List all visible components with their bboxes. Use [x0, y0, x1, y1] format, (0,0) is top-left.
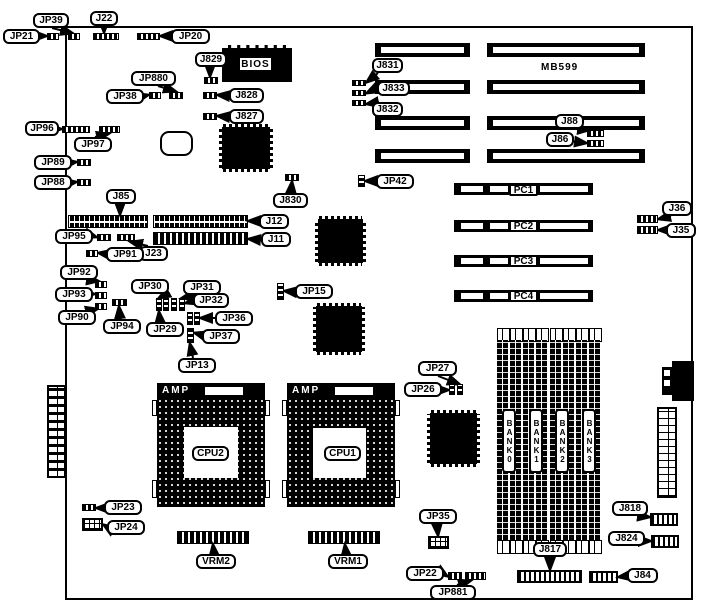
- bank-label: BANK2: [555, 409, 569, 473]
- jp30-jumper-3: [171, 298, 177, 311]
- label-jp39: JP39: [33, 13, 69, 28]
- jp21-jumper: [47, 33, 59, 40]
- cpu1-label: CPU1: [324, 446, 361, 461]
- j84-leader-line: [619, 576, 627, 577]
- jp35-jumper: [428, 536, 449, 549]
- label-jp24: JP24: [107, 520, 145, 535]
- jp880-jumper: [169, 92, 183, 99]
- j827-leader-line: [218, 116, 229, 117]
- bank-label: BANK0: [502, 409, 516, 473]
- label-jp37: JP37: [202, 329, 240, 344]
- label-j85: J85: [106, 189, 136, 204]
- label-j817: J817: [533, 542, 567, 557]
- j831-leader-line: [367, 73, 378, 82]
- label-jp32: JP32: [193, 293, 229, 308]
- jp36-jumper-2: [194, 312, 200, 325]
- jp94-jumper: [112, 299, 127, 306]
- label-jp96: JP96: [25, 121, 59, 136]
- label-jp38: JP38: [106, 89, 144, 104]
- label-j824: J824: [608, 531, 645, 546]
- label-jp23: JP23: [104, 500, 142, 515]
- jp90-jumper: [95, 303, 107, 310]
- label-j22: J22: [90, 11, 118, 26]
- label-j86: J86: [546, 132, 574, 147]
- jp27-leader-line: [438, 376, 459, 384]
- j831-jumper: [352, 80, 366, 86]
- bank-label: BANK3: [582, 409, 596, 473]
- jp23-jumper: [82, 504, 96, 511]
- jp880-leader-line: [158, 86, 175, 91]
- j830-jumper: [285, 174, 299, 181]
- label-j818: J818: [612, 501, 648, 516]
- j35-jumper: [637, 226, 658, 234]
- jp91-leader-line: [99, 253, 106, 254]
- jp30-jumper-4: [179, 298, 185, 311]
- label-jp93: JP93: [55, 287, 93, 302]
- jp38-jumper: [149, 92, 161, 99]
- j829-jumper: [204, 77, 218, 84]
- jp37-jumper: [187, 328, 194, 343]
- label-j11: J11: [261, 232, 291, 247]
- label-jp35: JP35: [419, 509, 457, 524]
- jp30-jumper-1: [156, 298, 162, 311]
- label-jp97: JP97: [74, 137, 112, 152]
- label-jp20: JP20: [171, 29, 210, 44]
- jp15-leader-line: [285, 291, 295, 292]
- motherboard-diagram: BIOSMB599BANK0BANK1BANK2BANK3AMPAMPJP39J…: [0, 0, 701, 611]
- vrm1-leader-line: [345, 545, 346, 554]
- label-j831: J831: [372, 58, 403, 73]
- jp95-jumper: [97, 234, 111, 241]
- jp36-jumper-1: [187, 312, 193, 325]
- label-jp36: JP36: [215, 311, 253, 326]
- label-jp22: JP22: [406, 566, 444, 581]
- label-j35: J35: [666, 223, 696, 238]
- label-jp30: JP30: [131, 279, 169, 294]
- label-jp95: JP95: [55, 229, 93, 244]
- j827-jumper: [203, 113, 217, 120]
- jp89-jumper: [77, 159, 91, 166]
- j88-jumper: [587, 130, 604, 137]
- label-j84: J84: [627, 568, 658, 583]
- pc1-label: PC1: [509, 184, 538, 196]
- j833-leader-line: [367, 88, 377, 93]
- j23-jumper: [117, 234, 135, 241]
- pc4-label: PC4: [509, 290, 538, 302]
- jp94-leader-line: [119, 307, 120, 319]
- jp27-jumper: [457, 384, 463, 395]
- jp15-jumper: [277, 283, 284, 300]
- label-jp21: JP21: [3, 29, 40, 44]
- label-j827: J827: [229, 109, 264, 124]
- jp20-jumper: [137, 33, 160, 40]
- label-jp29: JP29: [146, 322, 184, 337]
- j818-leader-line: [640, 516, 649, 517]
- jp92-jumper: [95, 281, 107, 288]
- jp30-jumper-2: [163, 298, 169, 311]
- label-jp92: JP92: [60, 265, 98, 280]
- jp35-leader-line: [437, 524, 438, 535]
- label-j36: J36: [662, 201, 692, 216]
- label-j832: J832: [372, 102, 403, 117]
- label-jp26: JP26: [404, 382, 442, 397]
- jp88-jumper: [77, 179, 91, 186]
- label-vrm1: VRM1: [328, 554, 368, 569]
- jp32-leader-line: [186, 301, 193, 303]
- j832-jumper: [352, 100, 366, 106]
- label-vrm2: VRM2: [196, 554, 236, 569]
- jp24-jumper: [82, 518, 103, 531]
- jp95-leader-line: [93, 236, 96, 237]
- cpu2-label: CPU2: [192, 446, 229, 461]
- j828-jumper: [203, 92, 217, 99]
- j36-leader-line: [659, 216, 671, 219]
- jp22-jumper: [448, 572, 462, 580]
- pc3-label: PC3: [509, 255, 538, 267]
- j830-leader-line: [291, 182, 292, 193]
- vrm2-leader-line: [213, 545, 214, 554]
- jp881-jumper: [465, 572, 486, 580]
- jp29-leader-line: [159, 312, 160, 322]
- label-j833: J833: [377, 81, 410, 96]
- j22-jumper: [93, 33, 119, 40]
- j86-jumper: [587, 140, 604, 147]
- label-j829: J829: [195, 52, 227, 67]
- label-j88: J88: [555, 114, 584, 129]
- jp93-jumper: [95, 292, 107, 299]
- label-jp88: JP88: [34, 175, 72, 190]
- jp96-jumper: [62, 126, 90, 133]
- label-j828: J828: [229, 88, 264, 103]
- jp13-leader-line: [190, 344, 193, 358]
- jp42-jumper: [358, 175, 365, 187]
- jp97-jumper: [99, 126, 120, 133]
- label-jp27: JP27: [418, 361, 457, 376]
- label-j12: J12: [259, 214, 289, 229]
- jp22-leader-line: [444, 574, 447, 576]
- label-jp42: JP42: [376, 174, 414, 189]
- label-jp89: JP89: [34, 155, 72, 170]
- pc2-label: PC2: [509, 220, 538, 232]
- j36-jumper: [637, 215, 658, 223]
- jp39-jumper: [68, 33, 80, 40]
- j11-leader-line: [249, 239, 261, 240]
- label-jp90: JP90: [58, 310, 96, 325]
- bank-label: BANK1: [529, 409, 543, 473]
- jp37-leader-line: [195, 333, 202, 335]
- label-jp881: JP881: [430, 585, 476, 600]
- label-jp91: JP91: [106, 247, 144, 262]
- label-jp13: JP13: [178, 358, 216, 373]
- jp91-jumper: [86, 250, 98, 257]
- j828-leader-line: [218, 95, 229, 96]
- label-j830: J830: [273, 193, 308, 208]
- j833-jumper: [352, 90, 366, 96]
- jp26-jumper-1: [449, 384, 455, 395]
- label-jp15: JP15: [295, 284, 333, 299]
- label-jp94: JP94: [103, 319, 141, 334]
- label-jp880: JP880: [131, 71, 176, 86]
- jp38-leader-line: [144, 95, 148, 96]
